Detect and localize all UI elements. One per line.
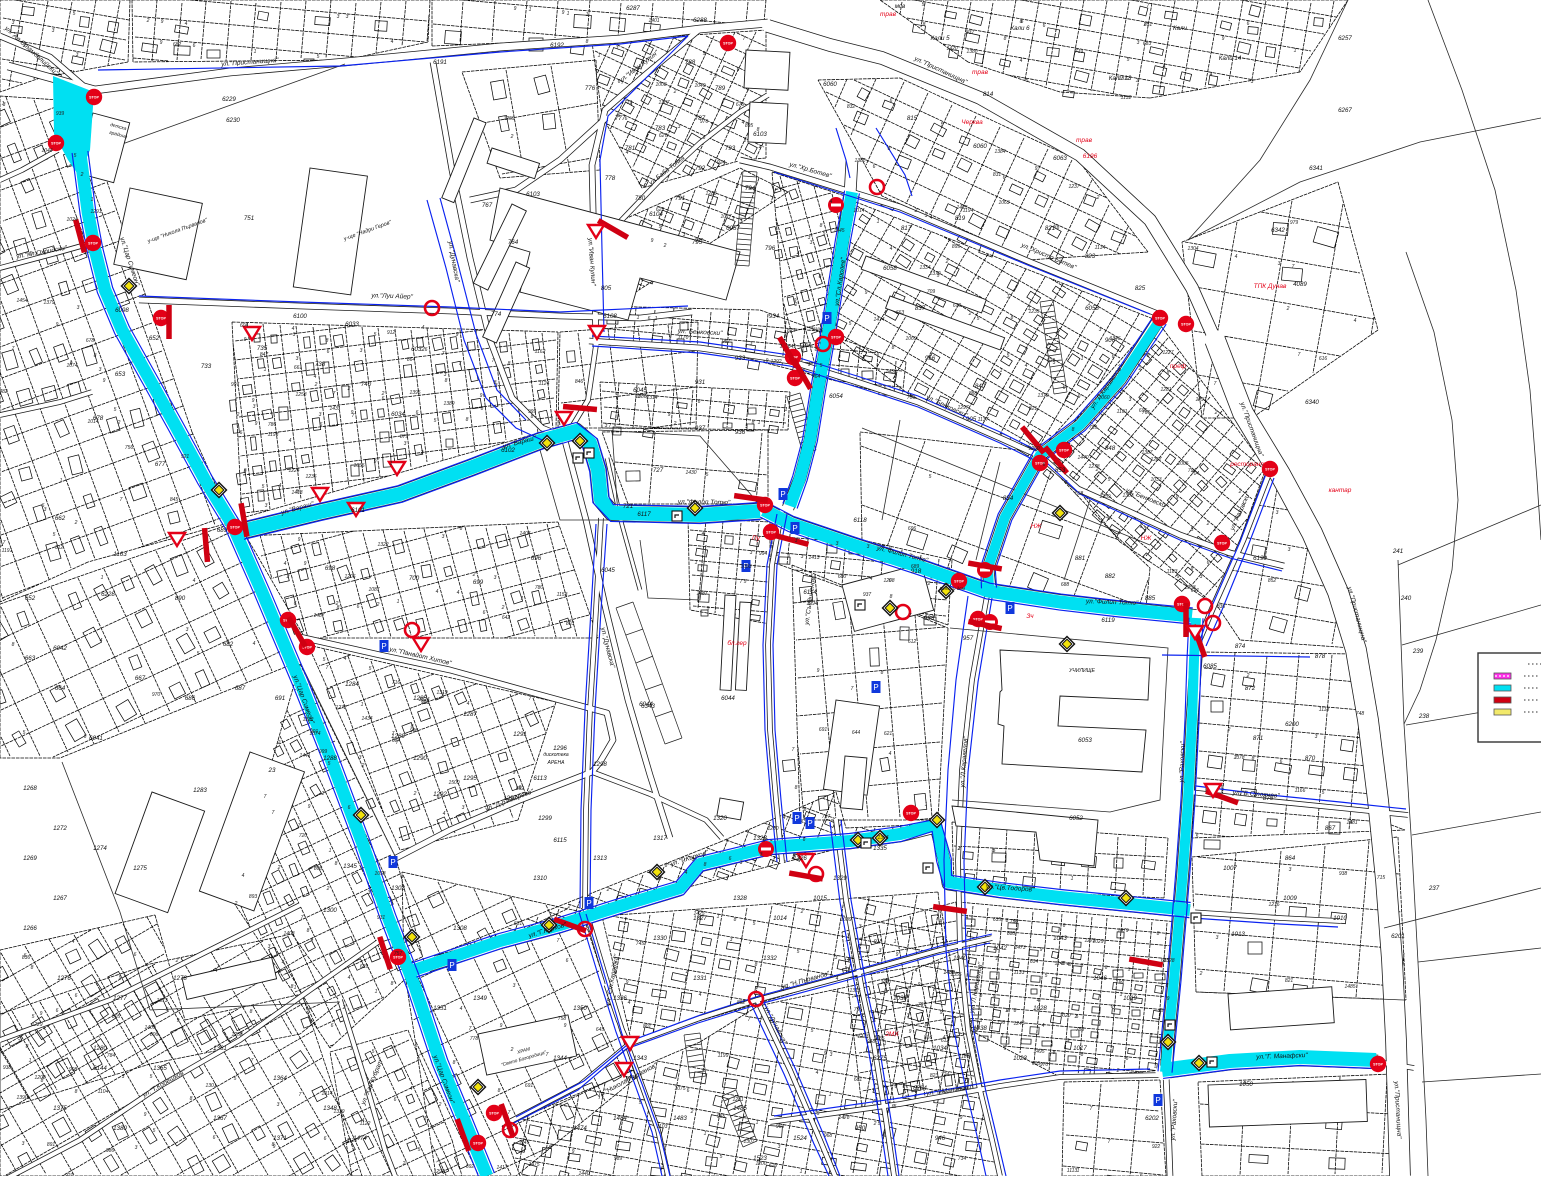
svg-text:1007: 1007	[1223, 865, 1237, 872]
svg-text:6: 6	[84, 734, 87, 740]
svg-text:1291: 1291	[1195, 397, 1206, 403]
svg-text:3: 3	[12, 20, 15, 26]
svg-text:2: 2	[510, 134, 514, 140]
svg-text:6118: 6118	[853, 517, 867, 524]
svg-text:4: 4	[460, 1006, 463, 1012]
svg-text:950: 950	[855, 1125, 866, 1132]
svg-text:STOP: STOP	[51, 141, 61, 145]
svg-text:5: 5	[418, 1147, 421, 1153]
svg-text:6: 6	[1112, 354, 1115, 360]
svg-text:767: 767	[482, 202, 493, 209]
svg-text:6340: 6340	[1305, 399, 1319, 406]
svg-text:7: 7	[1214, 381, 1217, 387]
svg-text:3: 3	[732, 216, 735, 222]
svg-text:1: 1	[264, 367, 267, 373]
svg-text:799: 799	[1089, 425, 1098, 431]
svg-text:3: 3	[750, 550, 753, 556]
svg-text:1272: 1272	[1084, 938, 1095, 944]
svg-text:6: 6	[625, 116, 628, 122]
svg-text:7: 7	[850, 969, 853, 975]
svg-text:689: 689	[217, 527, 228, 534]
svg-text:1: 1	[884, 1041, 887, 1047]
svg-text:1: 1	[655, 316, 658, 322]
svg-text:трав: трав	[880, 11, 897, 18]
svg-text:1364: 1364	[273, 1075, 287, 1082]
svg-text:3: 3	[638, 394, 641, 400]
svg-text:6102: 6102	[501, 447, 515, 454]
svg-text:946: 946	[935, 1135, 946, 1142]
svg-text:7: 7	[754, 535, 757, 541]
svg-text:6042: 6042	[53, 645, 67, 652]
svg-text:899: 899	[952, 244, 961, 250]
svg-text:АРЕНА: АРЕНА	[547, 760, 566, 766]
svg-text:3: 3	[925, 213, 928, 219]
svg-text:1014: 1014	[773, 915, 787, 922]
svg-text:9: 9	[351, 410, 354, 416]
svg-text:3: 3	[836, 541, 839, 547]
svg-text:931: 931	[695, 379, 705, 386]
svg-text:4: 4	[1042, 1023, 1045, 1029]
svg-text:3: 3	[1001, 1033, 1004, 1039]
svg-text:1122: 1122	[303, 717, 314, 723]
svg-text:1: 1	[598, 53, 601, 59]
svg-text:2: 2	[347, 386, 351, 392]
svg-text:7: 7	[943, 942, 946, 948]
svg-text:4: 4	[1163, 64, 1166, 70]
svg-text:P: P	[807, 819, 812, 828]
svg-text:957: 957	[722, 339, 731, 345]
svg-text:3: 3	[337, 14, 340, 20]
svg-text:661: 661	[294, 365, 303, 371]
svg-text:6057: 6057	[726, 225, 740, 232]
svg-text:1145: 1145	[519, 1140, 530, 1146]
svg-text:1186: 1186	[959, 1054, 970, 1060]
svg-text:7: 7	[469, 1026, 472, 1032]
svg-text:1373: 1373	[156, 998, 167, 1004]
svg-text:4: 4	[685, 870, 688, 876]
svg-text:691: 691	[819, 727, 828, 733]
svg-text:1: 1	[548, 621, 551, 627]
svg-text:4: 4	[467, 701, 470, 707]
svg-text:1: 1	[782, 987, 785, 993]
svg-text:7: 7	[99, 1034, 102, 1040]
svg-text:1: 1	[980, 1018, 983, 1024]
svg-text:696: 696	[908, 526, 917, 532]
svg-text:1: 1	[567, 11, 570, 17]
svg-text:5: 5	[23, 730, 26, 736]
svg-text:9: 9	[940, 1010, 943, 1016]
svg-text:6: 6	[1280, 759, 1283, 765]
svg-text:890: 890	[175, 595, 186, 602]
svg-text:908: 908	[69, 1067, 78, 1073]
svg-text:757: 757	[394, 951, 403, 957]
svg-text:1272: 1272	[53, 825, 67, 832]
svg-text:695: 695	[1139, 408, 1148, 414]
svg-text:3: 3	[710, 71, 713, 77]
svg-text:888: 888	[969, 391, 978, 397]
svg-text:7: 7	[301, 915, 304, 921]
svg-text:5: 5	[1128, 967, 1131, 973]
svg-text:764: 764	[508, 239, 519, 246]
svg-text:9: 9	[308, 804, 311, 810]
svg-text:1298: 1298	[593, 761, 607, 768]
svg-text:УЧИЛИЩЕ: УЧИЛИЩЕ	[1069, 668, 1096, 674]
svg-text:1118: 1118	[1319, 707, 1330, 713]
svg-text:645: 645	[596, 1027, 605, 1033]
svg-text:6: 6	[327, 349, 330, 355]
svg-text:776: 776	[585, 85, 596, 92]
svg-text:1028: 1028	[1033, 1005, 1047, 1012]
svg-text:Кали 6: Кали 6	[1010, 25, 1030, 32]
svg-text:1101: 1101	[1117, 409, 1128, 415]
svg-text:1074: 1074	[309, 731, 320, 737]
svg-text:635: 635	[993, 917, 1002, 923]
svg-text:3: 3	[1288, 547, 1291, 553]
svg-text:989: 989	[614, 1156, 623, 1162]
svg-text:1440: 1440	[578, 1171, 589, 1176]
svg-text:5: 5	[823, 231, 826, 237]
svg-text:848: 848	[1105, 445, 1116, 452]
svg-text:788: 788	[685, 59, 696, 66]
svg-text:3: 3	[1251, 79, 1254, 85]
svg-text:5: 5	[929, 474, 932, 480]
svg-text:5: 5	[849, 321, 852, 327]
svg-text:1326: 1326	[793, 855, 807, 862]
svg-text:756: 756	[1076, 1027, 1085, 1033]
svg-text:1023: 1023	[1013, 1055, 1027, 1062]
svg-text:9: 9	[177, 1018, 180, 1024]
svg-text:4: 4	[930, 215, 933, 221]
svg-text:5: 5	[884, 385, 887, 391]
svg-text:6117: 6117	[637, 511, 651, 518]
svg-text:700: 700	[409, 575, 420, 582]
svg-text:8: 8	[1081, 963, 1084, 969]
svg-text:1351: 1351	[433, 1005, 447, 1012]
svg-text:8: 8	[75, 1089, 78, 1095]
svg-text:716: 716	[392, 680, 401, 686]
svg-text:8: 8	[1004, 36, 1007, 42]
svg-text:6033: 6033	[345, 321, 359, 328]
svg-text:997: 997	[231, 382, 240, 388]
svg-text:3: 3	[77, 305, 80, 311]
svg-text:8: 8	[1157, 931, 1160, 937]
svg-text:1482: 1482	[0, 389, 8, 395]
svg-text:616: 616	[1319, 356, 1328, 362]
svg-text:7: 7	[264, 794, 267, 800]
svg-text:1297: 1297	[503, 795, 517, 802]
svg-text:1: 1	[1007, 294, 1010, 300]
svg-text:5: 5	[945, 583, 948, 589]
svg-text:преф: преф	[1170, 363, 1187, 370]
svg-text:6058: 6058	[883, 265, 897, 272]
svg-text:663: 663	[896, 310, 905, 316]
svg-text:1166: 1166	[1295, 788, 1306, 794]
svg-text:1390: 1390	[16, 1095, 27, 1101]
svg-text:2: 2	[17, 1039, 21, 1045]
svg-text:758: 758	[558, 1016, 567, 1022]
svg-text:P: P	[586, 899, 591, 908]
svg-text:дискотека: дискотека	[543, 752, 568, 758]
svg-text:829: 829	[787, 328, 796, 334]
svg-text:4089: 4089	[1293, 281, 1307, 288]
svg-text:1335: 1335	[873, 845, 887, 852]
svg-text:6: 6	[331, 1023, 334, 1029]
svg-text:1208: 1208	[883, 578, 894, 584]
svg-text:2: 2	[567, 904, 571, 910]
svg-text:2: 2	[1227, 727, 1231, 733]
svg-text:8: 8	[1011, 315, 1014, 321]
svg-text:9: 9	[514, 6, 517, 12]
svg-text:8: 8	[980, 993, 983, 999]
svg-text:1019: 1019	[1123, 995, 1137, 1002]
svg-text:3: 3	[942, 936, 945, 942]
svg-text:1370: 1370	[1037, 393, 1048, 399]
svg-text:5: 5	[797, 949, 800, 955]
svg-text:1040: 1040	[953, 955, 967, 962]
svg-text:5: 5	[937, 273, 940, 279]
svg-text:1313: 1313	[593, 855, 607, 862]
svg-text:6284: 6284	[913, 1085, 927, 1092]
svg-text:8: 8	[757, 127, 760, 133]
svg-text:664: 664	[55, 685, 66, 692]
svg-text:942: 942	[695, 238, 704, 244]
svg-text:692: 692	[466, 1164, 475, 1170]
svg-text:6060: 6060	[973, 143, 987, 150]
svg-text:970: 970	[152, 692, 161, 698]
svg-text:8: 8	[819, 274, 822, 280]
svg-text:6: 6	[729, 856, 732, 862]
svg-text:6060: 6060	[823, 81, 837, 88]
svg-text:STOP: STOP	[473, 1141, 483, 1145]
svg-text:3: 3	[253, 404, 256, 410]
svg-text:1301: 1301	[205, 1083, 216, 1089]
svg-text:1137: 1137	[978, 417, 989, 423]
svg-text:1295: 1295	[463, 775, 477, 782]
svg-text:7: 7	[909, 613, 912, 619]
svg-text:1329: 1329	[833, 875, 847, 882]
svg-text:5: 5	[659, 224, 662, 230]
svg-text:1: 1	[848, 994, 851, 1000]
svg-text:5: 5	[32, 1014, 35, 1020]
svg-text:3: 3	[867, 544, 870, 550]
svg-text:2: 2	[1214, 410, 1218, 416]
svg-text:1441: 1441	[299, 753, 310, 759]
svg-text:1287: 1287	[463, 711, 477, 718]
svg-text:1408: 1408	[283, 931, 294, 937]
svg-text:653: 653	[803, 342, 812, 348]
svg-text:8: 8	[795, 785, 798, 791]
svg-text:5: 5	[1026, 78, 1029, 84]
svg-text:5: 5	[878, 1121, 881, 1127]
svg-text:882: 882	[1105, 573, 1116, 580]
svg-text:806: 806	[314, 866, 323, 872]
svg-text:5: 5	[744, 579, 747, 585]
svg-text:6: 6	[892, 1104, 895, 1110]
svg-text:STOP: STOP	[760, 503, 770, 507]
svg-text:1297: 1297	[957, 405, 968, 411]
svg-text:6: 6	[425, 347, 428, 353]
svg-text:8: 8	[815, 347, 818, 353]
svg-text:2: 2	[402, 1161, 406, 1167]
svg-text:8: 8	[445, 378, 448, 384]
svg-text:706: 706	[907, 395, 916, 401]
svg-text:1485: 1485	[1344, 984, 1355, 990]
svg-text:9: 9	[144, 1112, 147, 1118]
svg-text:1224: 1224	[288, 468, 299, 474]
svg-text:P: P	[381, 642, 386, 651]
svg-text:955: 955	[717, 1114, 726, 1120]
svg-text:1: 1	[29, 1058, 32, 1064]
svg-text:ул."Раховски": ул."Раховски"	[1178, 741, 1186, 784]
svg-text:642: 642	[502, 615, 511, 621]
svg-text:8: 8	[460, 526, 463, 532]
svg-text:5: 5	[317, 54, 320, 60]
svg-text:2: 2	[1074, 1014, 1078, 1020]
svg-text:1389: 1389	[443, 401, 454, 407]
svg-text:8: 8	[31, 965, 34, 971]
svg-text:1267: 1267	[53, 895, 67, 902]
svg-text:1199: 1199	[718, 1053, 729, 1059]
svg-text:5: 5	[150, 1074, 153, 1080]
svg-text:3: 3	[23, 43, 26, 49]
svg-text:709: 709	[927, 289, 936, 295]
svg-text:Зч: Зч	[1026, 613, 1034, 620]
svg-text:6034: 6034	[391, 411, 405, 418]
svg-text:7: 7	[715, 74, 718, 80]
svg-text:6229: 6229	[222, 96, 236, 103]
svg-text:6: 6	[1061, 1012, 1064, 1018]
svg-text:STOP: STOP	[723, 41, 733, 45]
svg-text:1361: 1361	[213, 1045, 227, 1052]
svg-text:1: 1	[254, 49, 257, 55]
svg-text:867: 867	[1325, 825, 1336, 832]
svg-text:6: 6	[42, 503, 45, 509]
svg-text:6: 6	[437, 794, 440, 800]
svg-text:1: 1	[1294, 48, 1297, 54]
svg-text:9: 9	[103, 378, 106, 384]
svg-text:6200: 6200	[1285, 721, 1299, 728]
svg-text:3: 3	[795, 538, 798, 544]
svg-text:6267: 6267	[1338, 107, 1352, 114]
svg-text:1283: 1283	[193, 787, 207, 794]
svg-text:836: 836	[1217, 604, 1226, 610]
svg-text:5: 5	[1045, 973, 1048, 979]
svg-text:9: 9	[244, 337, 247, 343]
svg-text:681: 681	[514, 921, 523, 927]
svg-text:4: 4	[974, 1030, 977, 1036]
svg-text:7: 7	[719, 229, 722, 235]
svg-text:864: 864	[1285, 855, 1296, 862]
svg-text:3: 3	[513, 983, 516, 989]
svg-text:9: 9	[918, 982, 921, 988]
svg-text:3: 3	[559, 1126, 562, 1132]
svg-text:P: P	[794, 814, 799, 823]
svg-text:STOP: STOP	[88, 241, 98, 245]
svg-text:9: 9	[56, 322, 59, 328]
svg-text:3: 3	[692, 857, 695, 863]
svg-text:719: 719	[1075, 49, 1084, 55]
svg-text:6045: 6045	[601, 567, 615, 574]
svg-text:6: 6	[1043, 462, 1046, 468]
svg-text:1017: 1017	[1073, 1045, 1087, 1052]
svg-text:5: 5	[153, 1128, 156, 1134]
svg-text:1274: 1274	[93, 845, 107, 852]
svg-text:6045: 6045	[633, 387, 647, 394]
svg-text:6: 6	[30, 251, 33, 257]
svg-text:821: 821	[1029, 406, 1038, 412]
svg-text:1: 1	[758, 420, 761, 426]
svg-text:8: 8	[586, 39, 589, 45]
svg-text:1122: 1122	[360, 1121, 371, 1127]
svg-text:780: 780	[535, 585, 544, 591]
svg-text:4: 4	[797, 251, 800, 257]
svg-text:780: 780	[635, 195, 646, 202]
svg-text:1034: 1034	[933, 1045, 947, 1052]
svg-text:8: 8	[391, 981, 394, 987]
svg-text:9: 9	[889, 546, 892, 552]
svg-text:9: 9	[766, 358, 769, 364]
svg-text:6098: 6098	[115, 307, 129, 314]
svg-text:3: 3	[1315, 734, 1318, 740]
svg-text:7: 7	[396, 740, 399, 746]
svg-text:1: 1	[1214, 527, 1217, 533]
svg-text:7: 7	[326, 665, 329, 671]
svg-text:1346: 1346	[1109, 336, 1120, 342]
svg-text:2: 2	[80, 172, 84, 178]
svg-text:1075: 1075	[674, 1086, 685, 1092]
svg-text:3: 3	[1099, 327, 1102, 333]
svg-text:5: 5	[1191, 527, 1194, 533]
svg-text:2: 2	[342, 920, 346, 926]
svg-text:846: 846	[575, 379, 584, 385]
svg-text:1193: 1193	[268, 432, 279, 438]
svg-text:9: 9	[1067, 1038, 1070, 1044]
svg-text:937: 937	[695, 425, 706, 432]
svg-text:5: 5	[1127, 57, 1130, 63]
svg-text:1290: 1290	[413, 755, 427, 762]
svg-text:8: 8	[752, 420, 755, 426]
svg-text:6191: 6191	[433, 59, 447, 66]
svg-text:1104: 1104	[98, 1089, 109, 1095]
svg-text:4: 4	[410, 1086, 413, 1092]
svg-text:1: 1	[785, 407, 788, 413]
svg-text:1291: 1291	[513, 731, 527, 738]
svg-text:1331: 1331	[693, 975, 707, 982]
svg-text:7: 7	[251, 1058, 254, 1064]
svg-text:1235: 1235	[1028, 309, 1039, 315]
svg-text:P: P	[792, 524, 797, 533]
svg-text:8: 8	[658, 876, 661, 882]
svg-text:7: 7	[1156, 399, 1159, 405]
svg-text:4: 4	[72, 939, 75, 945]
svg-text:4: 4	[391, 39, 394, 45]
svg-text:3: 3	[293, 332, 296, 338]
svg-text:3: 3	[442, 534, 445, 540]
svg-text:2: 2	[1138, 366, 1142, 372]
svg-text:5: 5	[197, 651, 200, 657]
svg-text:7: 7	[872, 1100, 875, 1106]
svg-text:6: 6	[803, 837, 806, 843]
svg-text:5: 5	[1322, 790, 1325, 796]
svg-text:2: 2	[146, 18, 150, 24]
svg-text:670: 670	[953, 303, 962, 309]
svg-text:1315: 1315	[849, 988, 860, 994]
svg-text:7: 7	[905, 1095, 908, 1101]
svg-text:4: 4	[915, 968, 918, 974]
svg-text:1049: 1049	[694, 83, 705, 89]
svg-text:8: 8	[1150, 1033, 1153, 1039]
svg-text:2: 2	[277, 865, 281, 871]
